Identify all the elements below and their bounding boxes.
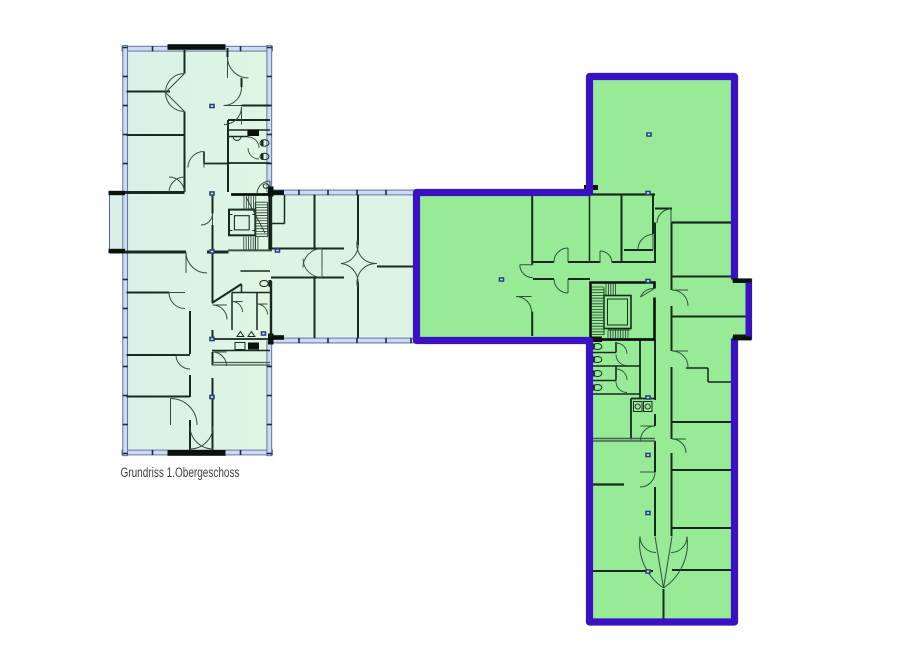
svg-text:Grundriss 1.Obergeschoss: Grundriss 1.Obergeschoss: [121, 465, 240, 481]
